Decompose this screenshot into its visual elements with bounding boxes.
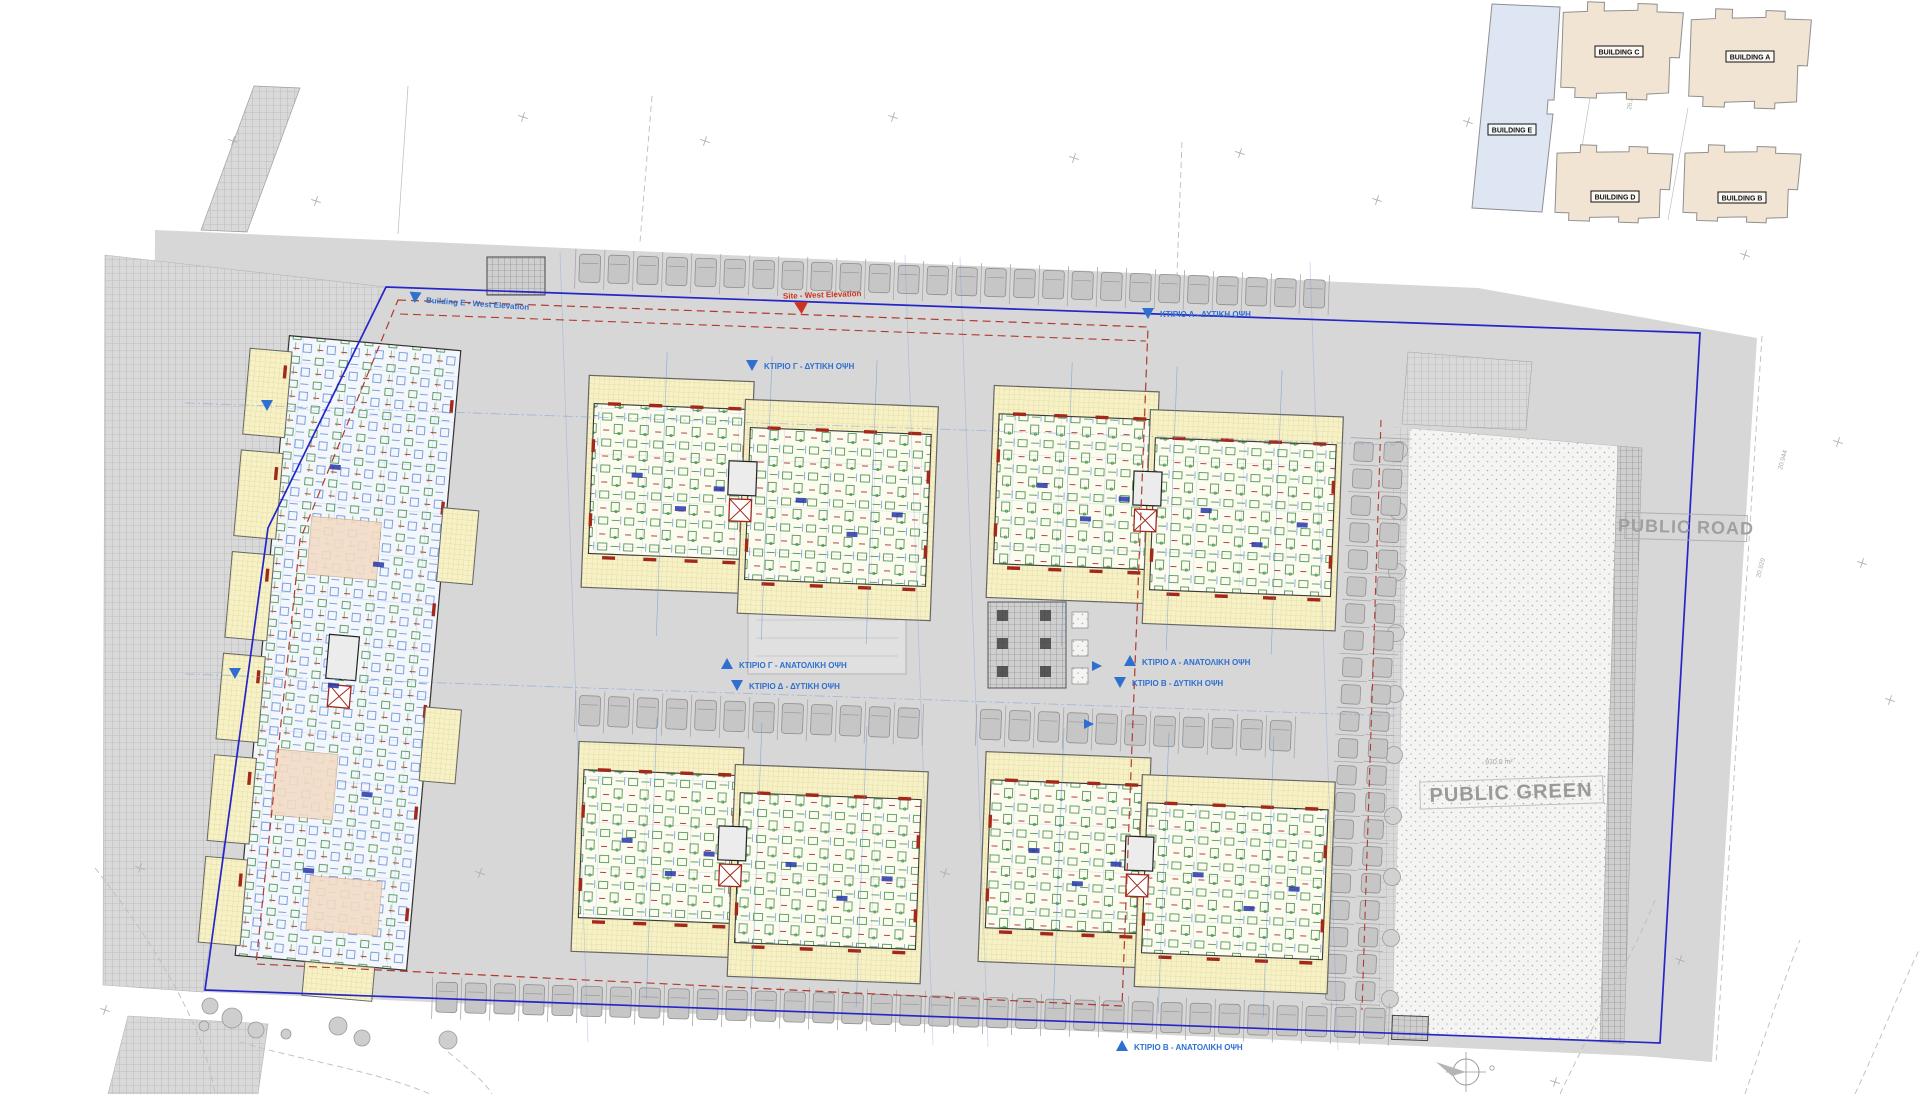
car-icon [697, 989, 719, 1020]
area-tag [328, 682, 339, 688]
wall-segment [1263, 596, 1276, 600]
wall-segment [712, 925, 725, 929]
wall-segment [602, 556, 615, 560]
car-icon [1303, 279, 1325, 308]
area-tag [1037, 483, 1048, 488]
tree-icon [202, 998, 218, 1014]
wall-segment [1323, 845, 1327, 858]
car-icon [639, 988, 661, 1019]
public-green-area [1388, 428, 1618, 1042]
wall-segment [1261, 805, 1274, 809]
area-tag [361, 792, 372, 798]
car-icon [1338, 738, 1358, 758]
wall-segment [993, 523, 997, 536]
wall-segment [643, 558, 656, 562]
car-icon [1216, 276, 1238, 305]
car-icon [1218, 1004, 1240, 1035]
stair-core [1133, 471, 1162, 506]
survey-cross-icon [1234, 147, 1247, 160]
wall-segment [1255, 959, 1268, 963]
area-tag [704, 851, 715, 856]
planter [1072, 640, 1088, 656]
car-icon [1357, 954, 1377, 974]
keyplan-building-e [1472, 4, 1560, 212]
car-icon [842, 993, 864, 1024]
svg-text:BUILDING A: BUILDING A [1730, 55, 1771, 62]
svg-text:BUILDING E: BUILDING E [1492, 128, 1533, 135]
stair-core [1125, 836, 1154, 871]
road-edge-line [398, 86, 408, 234]
wall-segment [1133, 417, 1146, 421]
car-icon [1360, 900, 1380, 920]
tree-icon [1383, 930, 1400, 947]
wall-segment [1150, 549, 1154, 562]
survey-cross-icon [1739, 249, 1752, 262]
wall-segment [988, 815, 992, 828]
wall-segment [1087, 782, 1100, 786]
car-icon [668, 989, 690, 1020]
svg-text:20.929: 20.929 [1755, 557, 1767, 578]
veranda-band [234, 450, 283, 539]
car-icon [1355, 981, 1375, 1001]
car-icon [1349, 523, 1369, 543]
room-highlight [307, 516, 382, 580]
car-icon [752, 702, 774, 733]
survey-cross-icon [1856, 557, 1869, 570]
car-icon [1158, 274, 1180, 303]
survey-cross-icon [887, 111, 900, 124]
stair-core [718, 826, 747, 861]
veranda-band [225, 552, 274, 641]
car-icon [1375, 604, 1395, 624]
wall-segment [745, 539, 749, 552]
elevation-marker-label: ΚΤΙΡΙΟ Γ - ΑΝΑΤΟΛΙΚΗ ΟΨΗ [739, 661, 847, 670]
car-icon [898, 265, 920, 294]
tree-icon [1386, 747, 1403, 764]
veranda-band [437, 508, 479, 585]
tree-icon [281, 1029, 291, 1039]
car-icon [1335, 792, 1355, 812]
wall-segment [1142, 913, 1146, 926]
tree-icon [222, 1008, 242, 1028]
keyplan-label-building-d: BUILDING D [1591, 191, 1639, 202]
car-icon [436, 982, 458, 1013]
wall-segment [806, 793, 819, 797]
area-tag [665, 871, 676, 876]
car-icon [1276, 1006, 1298, 1037]
car-icon [927, 266, 949, 295]
tree-icon [199, 1021, 209, 1031]
wall-segment [591, 439, 595, 452]
car-icon [871, 994, 893, 1025]
keyplan-building-b [1683, 144, 1802, 224]
wall-segment [680, 771, 693, 775]
dimension-grid [985, 780, 1144, 934]
wall-segment [902, 588, 915, 592]
wall-segment [592, 920, 605, 924]
wall-segment [916, 835, 920, 848]
north-sidewalk-strip-hatch [201, 86, 300, 232]
dimension-grid [993, 414, 1152, 570]
wall-segment [996, 449, 1000, 462]
car-icon [724, 259, 746, 288]
car-icon [552, 985, 574, 1016]
wall-segment [1048, 568, 1061, 572]
elevation-marker-label: ΚΤΙΡΙΟ Β - ΔΥΤΙΚΗ ΟΨΗ [1132, 679, 1223, 688]
building-floor-plans [194, 0, 1365, 1020]
car-icon [1361, 873, 1381, 893]
tree-icon [248, 1022, 264, 1038]
car-icon [1331, 873, 1351, 893]
car-icon [1352, 469, 1372, 489]
site-plan-sheet: Building E - West Elevation ΚΤΙΡΙΟ Γ - Δ… [0, 0, 1919, 1094]
key-plan: BUILDING C BUILDING A BUILDING E BUILDIN… [1472, 1, 1812, 224]
veranda-band [419, 707, 461, 784]
elevation-marker-label: ΚΤΙΡΙΟ Α - ΑΝΑΤΟΛΙΚΗ ΟΨΗ [1142, 658, 1251, 667]
wall-segment [1089, 569, 1102, 573]
survey-cross-icon [699, 135, 712, 148]
area-tag [1119, 496, 1130, 501]
wall-segment [898, 797, 911, 801]
car-icon [1372, 658, 1392, 678]
area-tag [632, 472, 643, 477]
planted-patch-hatch [1402, 352, 1532, 430]
car-icon [1124, 715, 1146, 746]
tree-icon [1382, 991, 1399, 1008]
car-icon [608, 697, 630, 728]
wall-segment [1307, 598, 1320, 602]
wall-segment [728, 407, 741, 411]
car-icon [1341, 684, 1361, 704]
wall-segment [1013, 412, 1026, 416]
wall-segment [926, 471, 930, 484]
car-icon [1305, 1006, 1327, 1037]
keyplan-building-d [1555, 144, 1674, 224]
stair-core [728, 461, 757, 496]
elevation-marker-label: ΚΤΙΡΙΟ Α - ΔΥΤΙΚΗ ΟΨΗ [1160, 310, 1251, 319]
survey-cross-icon [1068, 152, 1081, 165]
wall-segment [633, 922, 646, 926]
wall-segment [892, 951, 905, 955]
car-icon [1245, 277, 1267, 306]
dimension-grid [588, 404, 747, 560]
southwest-pavement-hatch [108, 1016, 268, 1094]
car-icon [1161, 1002, 1183, 1033]
car-icon [1363, 1008, 1385, 1039]
car-icon [1182, 717, 1204, 748]
car-icon [1348, 550, 1368, 570]
car-icon [1377, 577, 1397, 597]
keyplan-label-building-b: BUILDING B [1718, 192, 1766, 203]
car-icon [839, 705, 861, 736]
car-icon [1354, 442, 1374, 462]
car-icon [1132, 1001, 1154, 1032]
area-tag [1297, 522, 1308, 527]
svg-text:BUILDING C: BUILDING C [1599, 50, 1640, 57]
wall-segment [854, 795, 867, 799]
car-icon [1042, 270, 1064, 299]
car-icon [1095, 714, 1117, 745]
elevation-marker-label: ΚΤΙΡΙΟ Γ - ΔΥΤΙΚΗ ΟΨΗ [764, 362, 854, 371]
veranda-band [198, 856, 247, 945]
wall-segment [639, 770, 652, 774]
survey-cross-icon [517, 111, 530, 124]
car-icon [1328, 927, 1348, 947]
car-icon [900, 995, 922, 1026]
area-tag [1243, 906, 1254, 911]
marker-triangle-icon [1116, 1040, 1128, 1051]
car-icon [637, 698, 659, 729]
keyplan-label-building-a: BUILDING A [1726, 51, 1774, 62]
svg-text:20.944: 20.944 [1777, 449, 1789, 470]
car-icon [1038, 711, 1060, 742]
wall-segment [1046, 780, 1059, 784]
car-icon [608, 255, 630, 284]
car-icon [813, 993, 835, 1024]
car-icon [1211, 718, 1233, 749]
car-icon [958, 997, 980, 1028]
wall-segment [690, 405, 703, 409]
survey-cross-icon [1462, 116, 1475, 129]
wall-segment [1007, 566, 1020, 570]
car-icon [781, 703, 803, 734]
wall-segment [1215, 594, 1228, 598]
area-tag [1028, 848, 1039, 853]
car-icon [1071, 271, 1093, 300]
wall-segment [1299, 961, 1312, 965]
room-highlight [271, 749, 339, 820]
wall-segment [581, 805, 585, 818]
keyplan-label-building-c: BUILDING C [1595, 46, 1643, 57]
wall-segment [588, 513, 592, 526]
wall-segment [908, 432, 921, 436]
car-icon [581, 986, 603, 1017]
car-icon [666, 257, 688, 286]
wall-segment [810, 584, 823, 588]
area-tag [1289, 886, 1300, 891]
wall-segment [718, 773, 731, 777]
wall-segment [1305, 807, 1318, 811]
car-icon [1358, 927, 1378, 947]
wall-segment [1081, 933, 1094, 937]
elevation-marker-b-east: ΚΤΙΡΙΟ Β - ΑΝΑΤΟΛΙΚΗ ΟΨΗ [1116, 1040, 1243, 1052]
car-icon [1374, 631, 1394, 651]
tree-icon [354, 1030, 370, 1046]
elevation-marker-label: ΚΤΙΡΙΟ Β - ΑΝΑΤΟΛΙΚΗ ΟΨΗ [1134, 1043, 1243, 1052]
svg-text:PUBLIC ROAD: PUBLIC ROAD [1618, 515, 1754, 539]
svg-text:BUILDING D: BUILDING D [1595, 195, 1636, 202]
wall-segment [1005, 778, 1018, 782]
survey-cross-icon [310, 195, 323, 208]
veranda-band [243, 348, 292, 437]
car-icon [1016, 998, 1038, 1029]
car-icon [980, 709, 1002, 740]
car-icon [1014, 269, 1036, 298]
tree-icon [1384, 869, 1401, 886]
tree-icon [1385, 808, 1402, 825]
area-tag [1251, 542, 1262, 547]
area-tag [621, 838, 632, 843]
wall-segment [674, 923, 687, 927]
car-icon [811, 262, 833, 291]
compass-icon [1436, 1052, 1494, 1092]
car-icon [1368, 738, 1388, 758]
car-icon [1240, 719, 1262, 750]
car-icon [494, 984, 516, 1015]
wall-segment [649, 404, 662, 408]
survey-cross-icon [1884, 694, 1897, 707]
tree-icon [329, 1017, 347, 1035]
wall-segment [1119, 935, 1132, 939]
car-icon [523, 984, 545, 1015]
car-icon [1269, 720, 1291, 751]
car-icon [1382, 469, 1402, 489]
car-icon [755, 991, 777, 1022]
car-icon [1378, 550, 1398, 570]
car-icon [784, 992, 806, 1023]
car-icon [610, 987, 632, 1018]
wall-segment [1328, 556, 1332, 569]
car-icon [695, 700, 717, 731]
car-icon [666, 699, 688, 730]
survey-cross-icon [1371, 194, 1384, 207]
dimension-grid [745, 428, 932, 587]
area-tag [836, 896, 847, 901]
car-icon [1371, 685, 1391, 705]
keyplan-label-building-e: BUILDING E [1488, 124, 1536, 135]
car-icon [695, 258, 717, 287]
car-icon [1351, 496, 1371, 516]
car-icon [1153, 716, 1175, 747]
car-icon [465, 983, 487, 1014]
wall-segment [1207, 957, 1220, 961]
car-icon [1009, 710, 1031, 741]
planter [1072, 612, 1088, 628]
wall-segment [1221, 438, 1234, 442]
car-icon [1327, 954, 1347, 974]
car-icon [726, 990, 748, 1021]
wall-segment [864, 430, 877, 434]
wall-segment [985, 888, 989, 901]
planter [1072, 668, 1088, 684]
wall-segment [1320, 919, 1324, 932]
wall-segment [1213, 803, 1226, 807]
car-icon [637, 256, 659, 285]
car-icon [1332, 846, 1352, 866]
wall-segment [800, 947, 813, 951]
wall-segment [1095, 415, 1108, 419]
area-tag [1201, 508, 1212, 513]
svg-text:BUILDING B: BUILDING B [1722, 196, 1763, 203]
car-icon [1345, 604, 1365, 624]
car-icon [1189, 1003, 1211, 1034]
wall-segment [858, 586, 871, 590]
car-icon [1129, 273, 1151, 302]
survey-cross-icon [99, 1004, 112, 1017]
wall-segment [923, 545, 927, 558]
car-icon [956, 267, 978, 296]
area-tag [330, 464, 341, 470]
area-tag [675, 506, 686, 511]
area-tag [1072, 881, 1083, 886]
wall-segment [735, 902, 739, 915]
tree-icon [439, 1031, 457, 1049]
car-icon [810, 704, 832, 735]
area-tag [373, 562, 384, 568]
area-tag [1192, 872, 1203, 877]
car-icon [1369, 711, 1389, 731]
wall-segment [816, 428, 829, 432]
area-tag [1080, 516, 1091, 521]
public-green-area-label: 970.0 m² [1485, 758, 1514, 766]
survey-cross-icon [1832, 436, 1845, 449]
car-icon [723, 701, 745, 732]
car-icon [1379, 523, 1399, 543]
car-icon [869, 264, 891, 293]
wall-segment [999, 930, 1012, 934]
north-arrow-icon [1436, 1062, 1466, 1076]
wall-segment [684, 559, 697, 563]
car-icon [868, 707, 890, 738]
dimension-grid [578, 770, 737, 924]
survey-cross-icon [1549, 1076, 1562, 1089]
car-icon [1362, 846, 1382, 866]
car-icon [1342, 657, 1362, 677]
wall-segment [913, 909, 917, 922]
wall-segment [722, 561, 735, 565]
car-icon [1187, 275, 1209, 304]
car-icon [840, 263, 862, 292]
car-icon [1274, 278, 1296, 307]
site-plan-drawing: Building E - West Elevation ΚΤΙΡΙΟ Γ - Δ… [0, 0, 1919, 1094]
wall-segment [598, 768, 611, 772]
bin-enclosure [487, 257, 545, 295]
stair-core [326, 634, 360, 680]
car-icon [1344, 630, 1364, 650]
car-icon [1337, 765, 1357, 785]
area-tag [785, 862, 796, 867]
car-icon [897, 708, 919, 739]
car-icon [1334, 819, 1354, 839]
car-icon [1247, 1005, 1269, 1036]
area-tag [846, 532, 857, 537]
car-icon [1381, 496, 1401, 516]
car-icon [579, 254, 601, 283]
room-highlight [306, 876, 382, 936]
car-icon [1100, 272, 1122, 301]
elevation-marker-label: ΚΤΙΡΙΟ Δ - ΔΥΤΙΚΗ ΟΨΗ [749, 682, 840, 691]
area-tag [714, 486, 725, 491]
wall-segment [1331, 481, 1335, 494]
wall-segment [848, 949, 861, 953]
dimension-grid [1142, 803, 1329, 960]
area-tag [303, 868, 314, 874]
dimension-grid [1150, 438, 1337, 597]
area-tag [892, 512, 903, 517]
car-icon [1347, 577, 1367, 597]
car-icon [782, 261, 804, 290]
wall-segment [1125, 783, 1138, 787]
wall-segment [1054, 414, 1067, 418]
wall-segment [608, 402, 621, 406]
car-icon [579, 695, 601, 726]
wall-segment [1040, 932, 1053, 936]
area-tag [882, 876, 893, 881]
wall-segment [578, 878, 582, 891]
car-icon [753, 260, 775, 289]
area-tag [1110, 861, 1121, 866]
area-tag [796, 498, 807, 503]
